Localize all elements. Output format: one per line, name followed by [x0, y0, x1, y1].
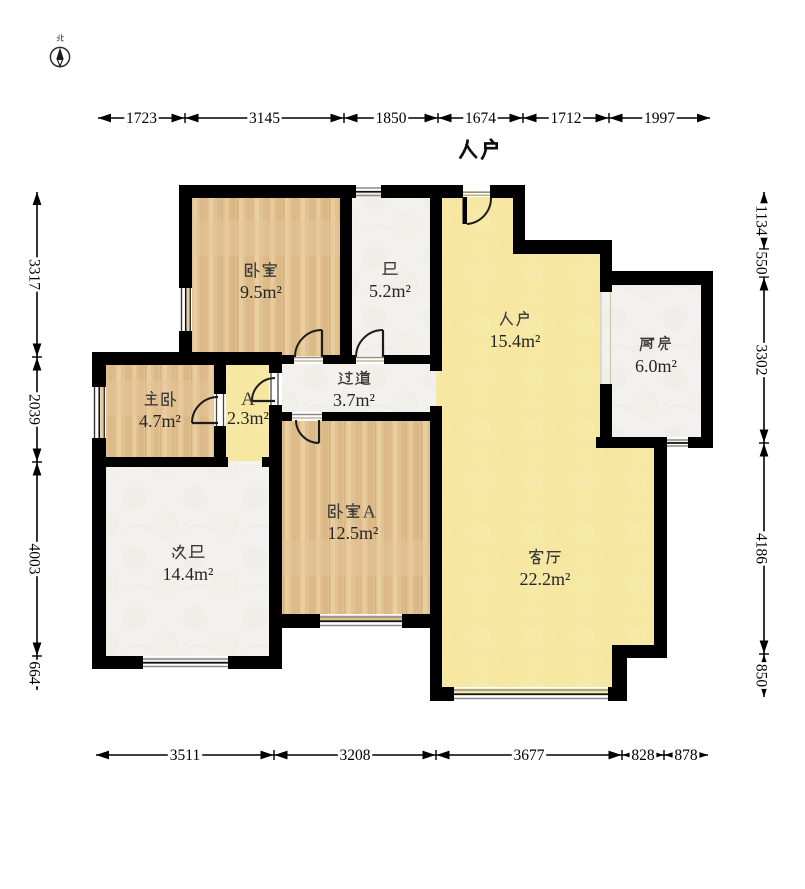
svg-text:828: 828 — [631, 747, 655, 764]
svg-text:4003: 4003 — [25, 544, 42, 575]
svg-text:12.5m²: 12.5m² — [328, 523, 379, 543]
svg-text:15.4m²: 15.4m² — [490, 331, 541, 351]
svg-text:664: 664 — [25, 661, 42, 685]
svg-text:5.2m²: 5.2m² — [369, 281, 411, 301]
svg-text:14.4m²: 14.4m² — [163, 564, 214, 584]
svg-text:1712: 1712 — [551, 110, 582, 127]
svg-text:3.7m²: 3.7m² — [333, 390, 375, 410]
svg-text:550: 550 — [752, 251, 769, 275]
svg-text:6.0m²: 6.0m² — [635, 356, 677, 376]
svg-text:3511: 3511 — [170, 747, 200, 764]
svg-text:9.5m²: 9.5m² — [240, 282, 282, 302]
svg-text:22.2m²: 22.2m² — [520, 569, 571, 589]
svg-text:3677: 3677 — [514, 747, 545, 764]
svg-text:3145: 3145 — [249, 110, 280, 127]
svg-text:1997: 1997 — [644, 110, 675, 127]
svg-text:A: A — [241, 389, 255, 410]
svg-text:850: 850 — [752, 664, 769, 688]
svg-text:1850: 1850 — [376, 110, 407, 127]
svg-text:878: 878 — [674, 747, 698, 764]
svg-text:4.7m²: 4.7m² — [139, 411, 181, 431]
svg-text:1723: 1723 — [126, 110, 157, 127]
svg-text:2.3m²: 2.3m² — [227, 408, 269, 428]
svg-text:1134: 1134 — [752, 205, 769, 236]
svg-text:2039: 2039 — [25, 394, 42, 425]
svg-text:A: A — [363, 502, 376, 522]
svg-text:1674: 1674 — [465, 110, 496, 127]
svg-text:4186: 4186 — [752, 533, 769, 564]
svg-text:3317: 3317 — [25, 259, 42, 290]
svg-text:3208: 3208 — [340, 747, 371, 764]
svg-text:3302: 3302 — [752, 345, 769, 376]
